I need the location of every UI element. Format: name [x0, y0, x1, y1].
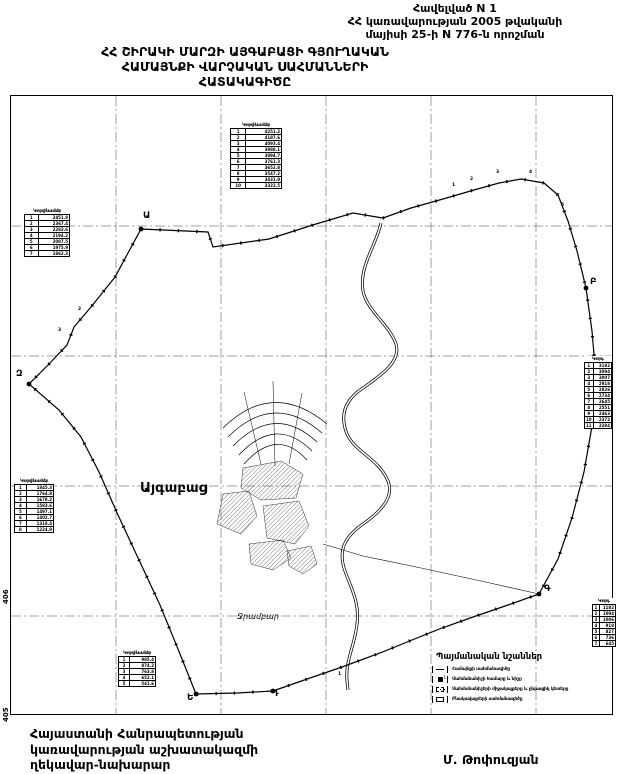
title-line: ՀԱՏԱԿԱԳԻԾԸ [70, 74, 420, 89]
legend-item: Սահմանանիշերի միջակայքերը և ընթացիկ կետե… [432, 686, 614, 693]
boundary-point-number: 1 [338, 672, 341, 677]
table-row: 71862.3 [25, 251, 70, 257]
settlement-boundary-symbol [432, 696, 448, 703]
appendix-reference: Հավելված N 1 ՀՀ կառավարության 2005 թվակա… [292, 2, 618, 41]
coordinate-table-grid: 12451.822367.432283.642194.252087.561975… [24, 214, 70, 257]
signatory-name: Մ. Թոփուզյան [443, 752, 539, 767]
table-row: 11182 [593, 605, 616, 611]
title-line: ՀՀ ՇԻՐԱԿԻ ՄԱՐԶԻ ԱՅԳԱԲԱՑԻ ԳՅՈՒՂԱԿԱՆ [70, 44, 420, 59]
table-row: 42918 [585, 381, 612, 387]
table-row: 7645 [593, 641, 616, 647]
legend-item-label: Բնակավայրերի սահմանագիծը [452, 697, 522, 702]
coordinate-table-grid: 14251.224187.634093.443988.153894.763761… [230, 128, 282, 189]
coordinate-table-title: Կոորդ. [592, 598, 616, 603]
legend-title: Պայմանական նշաններ [436, 652, 614, 662]
page-title: ՀՀ ՇԻՐԱԿԻ ՄԱՐԶԻ ԱՅԳԱԲԱՑԻ ԳՅՈՒՂԱԿԱՆ ՀԱՄԱՅ… [70, 44, 420, 89]
boundary-point-number: 4 [529, 170, 532, 175]
boundary-point-number: 2 [470, 177, 473, 182]
coordinate-table-grid: 11845.321764.831678.241583.651497.161402… [14, 484, 54, 533]
table-row: 112284 [585, 423, 612, 429]
title-line: ՀԱՄԱՅՆՔԻ ՎԱՐՉԱԿԱՆ ՍԱՀՄԱՆՆԵՐԻ [70, 59, 420, 74]
vertex-letter: Զ [16, 370, 23, 379]
coordinate-table-title: Կոորդ. [584, 356, 612, 361]
coordinate-table: Կոորդինատներ 14251.224187.634093.443988.… [230, 122, 282, 189]
table-row: 92463 [585, 411, 612, 417]
coordinate-table: Կոորդ. 131822309433007429185282662734726… [584, 356, 612, 429]
vertex-letter: Ե [187, 694, 194, 703]
river [342, 223, 397, 690]
signatory-title-line: Հայաստանի Հանրապետության [30, 726, 258, 742]
table-row: 31006 [593, 617, 616, 623]
reservoir-label: Ջրամբար [237, 612, 279, 621]
signatory-title: Հայաստանի Հանրապետության կառավարության ա… [30, 726, 258, 773]
map-frame [10, 95, 613, 715]
table-row: 52826 [585, 387, 612, 393]
vertex-letter: Գ [544, 585, 551, 594]
boundary-point-number: 5 [561, 203, 564, 208]
coordinate-table-grid: 1118221094310064918582767367645 [592, 604, 616, 647]
table-row: 5541.6 [119, 681, 156, 687]
vertex-letter: Դ [272, 690, 279, 699]
vertex-letter: Բ [590, 278, 597, 287]
legend: Պայմանական նշաններ Համայնքի սահմանագիծը … [432, 652, 614, 706]
coordinate-table: Կոորդինատներ 12451.822367.432283.642194.… [24, 208, 70, 257]
appendix-line: ՀՀ կառավարության 2005 թվականի [292, 15, 618, 28]
coordinate-table: Կոորդինատներ 11845.321764.831678.241583.… [14, 478, 54, 533]
table-row: 72645 [585, 399, 612, 405]
map-drawing [11, 96, 612, 714]
table-row: 23094 [585, 369, 612, 375]
sheet-number: 406 [2, 589, 10, 604]
boundary-point-number: 2 [78, 307, 81, 312]
boundary-point-number: 3 [496, 170, 499, 175]
boundary-point-number: 1 [452, 183, 455, 188]
table-row: 21094 [593, 611, 616, 617]
table-row: 102372 [585, 417, 612, 423]
appendix-line: Հավելված N 1 [292, 2, 618, 15]
coordinate-table-title: Կոորդինատներ [230, 122, 282, 127]
coordinate-table: Կոորդինատներ 1985.42874.23763.84652.1554… [118, 650, 156, 687]
legend-item-label: Համայնքի սահմանագիծը [452, 667, 510, 672]
table-row: 62734 [585, 393, 612, 399]
vertex-dots [27, 227, 589, 697]
village-label: Այգաբաց [140, 480, 207, 496]
coordinate-table-title: Կոորդինատներ [24, 208, 70, 213]
coordinate-table-title: Կոորդինատներ [118, 650, 156, 655]
legend-item-label: Սահմանանիշերի միջակայքերը և ընթացիկ կետե… [452, 687, 568, 692]
appendix-line: մայիսի 25-ի N 776-ն որոշման [292, 28, 618, 41]
grid-lines [11, 96, 612, 714]
table-row: 103322.5 [231, 183, 282, 189]
legend-item: Սահմանանիշի համարը և նիշը [432, 676, 614, 683]
table-row: 81224.9 [15, 527, 54, 533]
interval-points-symbol [432, 686, 448, 693]
legend-item: Բնակավայրերի սահմանագիծը [432, 696, 614, 703]
legend-item-label: Սահմանանիշի համարը և նիշը [452, 677, 522, 682]
boundary-point-number: 3 [58, 328, 61, 333]
scanned-map-document: { "header": { "appendix_lines": [ "Հավել… [0, 0, 621, 774]
coordinate-table-grid: 1985.42874.23763.84652.15541.6 [118, 656, 156, 687]
signatory-title-line: կառավարության աշխատակազմի [30, 742, 258, 758]
boundary-line-symbol [432, 666, 448, 673]
coordinate-table-title: Կոորդինատներ [14, 478, 54, 483]
village-area [217, 381, 327, 574]
coordinate-table-grid: 1318223094330074291852826627347264582551… [584, 362, 612, 429]
boundary-mark-symbol [432, 676, 448, 683]
community-boundary [29, 179, 596, 694]
vertex-letter: Ա [143, 212, 150, 221]
table-row: 82551 [585, 405, 612, 411]
legend-item: Համայնքի սահմանագիծը [432, 666, 614, 673]
signatory-title-line: ղեկավար-նախարար [30, 757, 258, 773]
coordinate-table: Կոորդ. 1118221094310064918582767367645 [592, 598, 616, 647]
table-row: 13182 [585, 363, 612, 369]
sheet-number: 405 [2, 707, 10, 722]
table-row: 33007 [585, 375, 612, 381]
